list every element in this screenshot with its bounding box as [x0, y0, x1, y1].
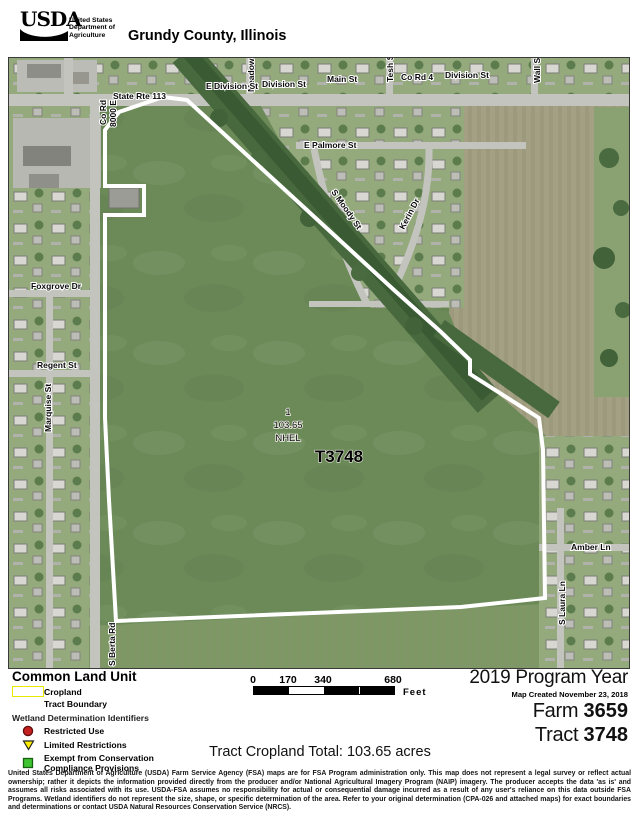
map-created-date: Map Created November 23, 2018	[469, 690, 628, 699]
legend-label: Tract Boundary	[44, 699, 107, 709]
program-info: 2019 Program Year Map Created November 2…	[469, 667, 628, 747]
usda-logo-text: USDA	[20, 10, 68, 28]
agency-line: Department of	[69, 24, 115, 31]
scale-tick: 680	[384, 674, 402, 686]
tract-boundary-swatch-icon	[13, 700, 43, 709]
street-label-s-berta-rd: S Berta Rd	[107, 623, 117, 666]
street-label-marquise-st: Marquise St	[43, 384, 53, 432]
scale-bar-graphic	[253, 686, 395, 695]
legend-item-cropland: Cropland	[12, 686, 242, 697]
legend-item-tract-boundary: Tract Boundary	[12, 699, 242, 709]
fsa-map-page: USDA United States Department of Agricul…	[0, 0, 638, 825]
residential-bottom-right	[539, 436, 629, 668]
farm-number: 3659	[584, 700, 629, 722]
street-label-e-division-st: E Division St	[206, 81, 258, 91]
scale-unit-label: Feet	[403, 687, 427, 698]
notch-building	[109, 188, 139, 208]
field-number-label: 1	[285, 407, 290, 418]
legend-label: Limited Restrictions	[44, 740, 127, 750]
scale-tick: 340	[314, 674, 332, 686]
tract-cropland-total: Tract Cropland Total: 103.65 acres	[150, 744, 490, 760]
scale-tick: 0	[250, 674, 256, 686]
restricted-use-icon	[22, 725, 34, 737]
street-label-tesh-st: Tesh St	[385, 58, 395, 82]
farm-label: Farm	[533, 700, 578, 722]
scale-tick: 170	[279, 674, 297, 686]
tract-number-label: T3748	[315, 447, 363, 466]
street-label-state-rte-113: State Rte 113	[113, 91, 166, 101]
legend-label-line: Exempt from Conservation	[44, 753, 154, 763]
street-label-division-st-west: Division St	[262, 79, 306, 89]
legend-title: Common Land Unit	[12, 669, 242, 684]
street-label-division-st-east: Division St	[445, 70, 489, 80]
street-label-regent-st: Regent St	[37, 360, 77, 370]
agency-line: United States	[69, 17, 115, 24]
aerial-map: State Rte 113 Meadow Ln E Division St Di…	[8, 57, 630, 669]
farm-number-line: Farm 3659	[469, 700, 628, 723]
street-label-main-st: Main St	[327, 74, 357, 84]
legend-label: Cropland	[44, 687, 82, 697]
street-label-co-rd-4: Co Rd 4	[401, 72, 433, 82]
disclaimer-text: United States Department of Agriculture …	[8, 770, 631, 813]
street-label-s-laura-ln: S Laura Ln	[557, 581, 567, 625]
agency-name: United States Department of Agriculture	[69, 17, 115, 39]
field-acres-label: 103.65	[273, 420, 302, 431]
street-label-amber-ln: Amber Ln	[571, 542, 611, 552]
wetland-identifiers-title: Wetland Determination Identifiers	[12, 713, 242, 723]
cropland-swatch-icon	[12, 686, 44, 697]
usda-logo: USDA	[20, 10, 68, 50]
street-label-e-palmore-st: E Palmore St	[304, 140, 357, 150]
street-label-co-rd-8000-line1: Co Rd	[98, 100, 108, 125]
map-svg: State Rte 113 Meadow Ln E Division St Di…	[9, 58, 629, 668]
field-hel-label: NHEL	[275, 433, 300, 444]
legend-label: Restricted Use	[44, 726, 104, 736]
scale-bar: 0 170 340 680 Feet	[243, 674, 443, 695]
street-label-wall-st: Wall St	[532, 58, 542, 83]
scale-tick-labels: 0 170 340 680	[243, 674, 443, 686]
street-label-co-rd-8000-line2: 8000 E	[108, 100, 118, 127]
page-title: Grundy County, Illinois	[128, 28, 286, 44]
tract-number-line: Tract 3748	[469, 724, 628, 747]
program-year: 2019 Program Year	[469, 667, 628, 689]
exempt-icon	[22, 757, 34, 769]
legend-item-restricted-use: Restricted Use	[12, 725, 242, 737]
street-label-foxgrove-dr: Foxgrove Dr	[31, 281, 82, 291]
tract-label: Tract	[535, 724, 578, 746]
usda-swoosh-icon	[20, 28, 68, 41]
limited-restrictions-icon	[22, 739, 35, 751]
tract-number: 3748	[584, 724, 629, 746]
agency-line: Agriculture	[69, 32, 115, 39]
commercial-area	[13, 60, 101, 188]
